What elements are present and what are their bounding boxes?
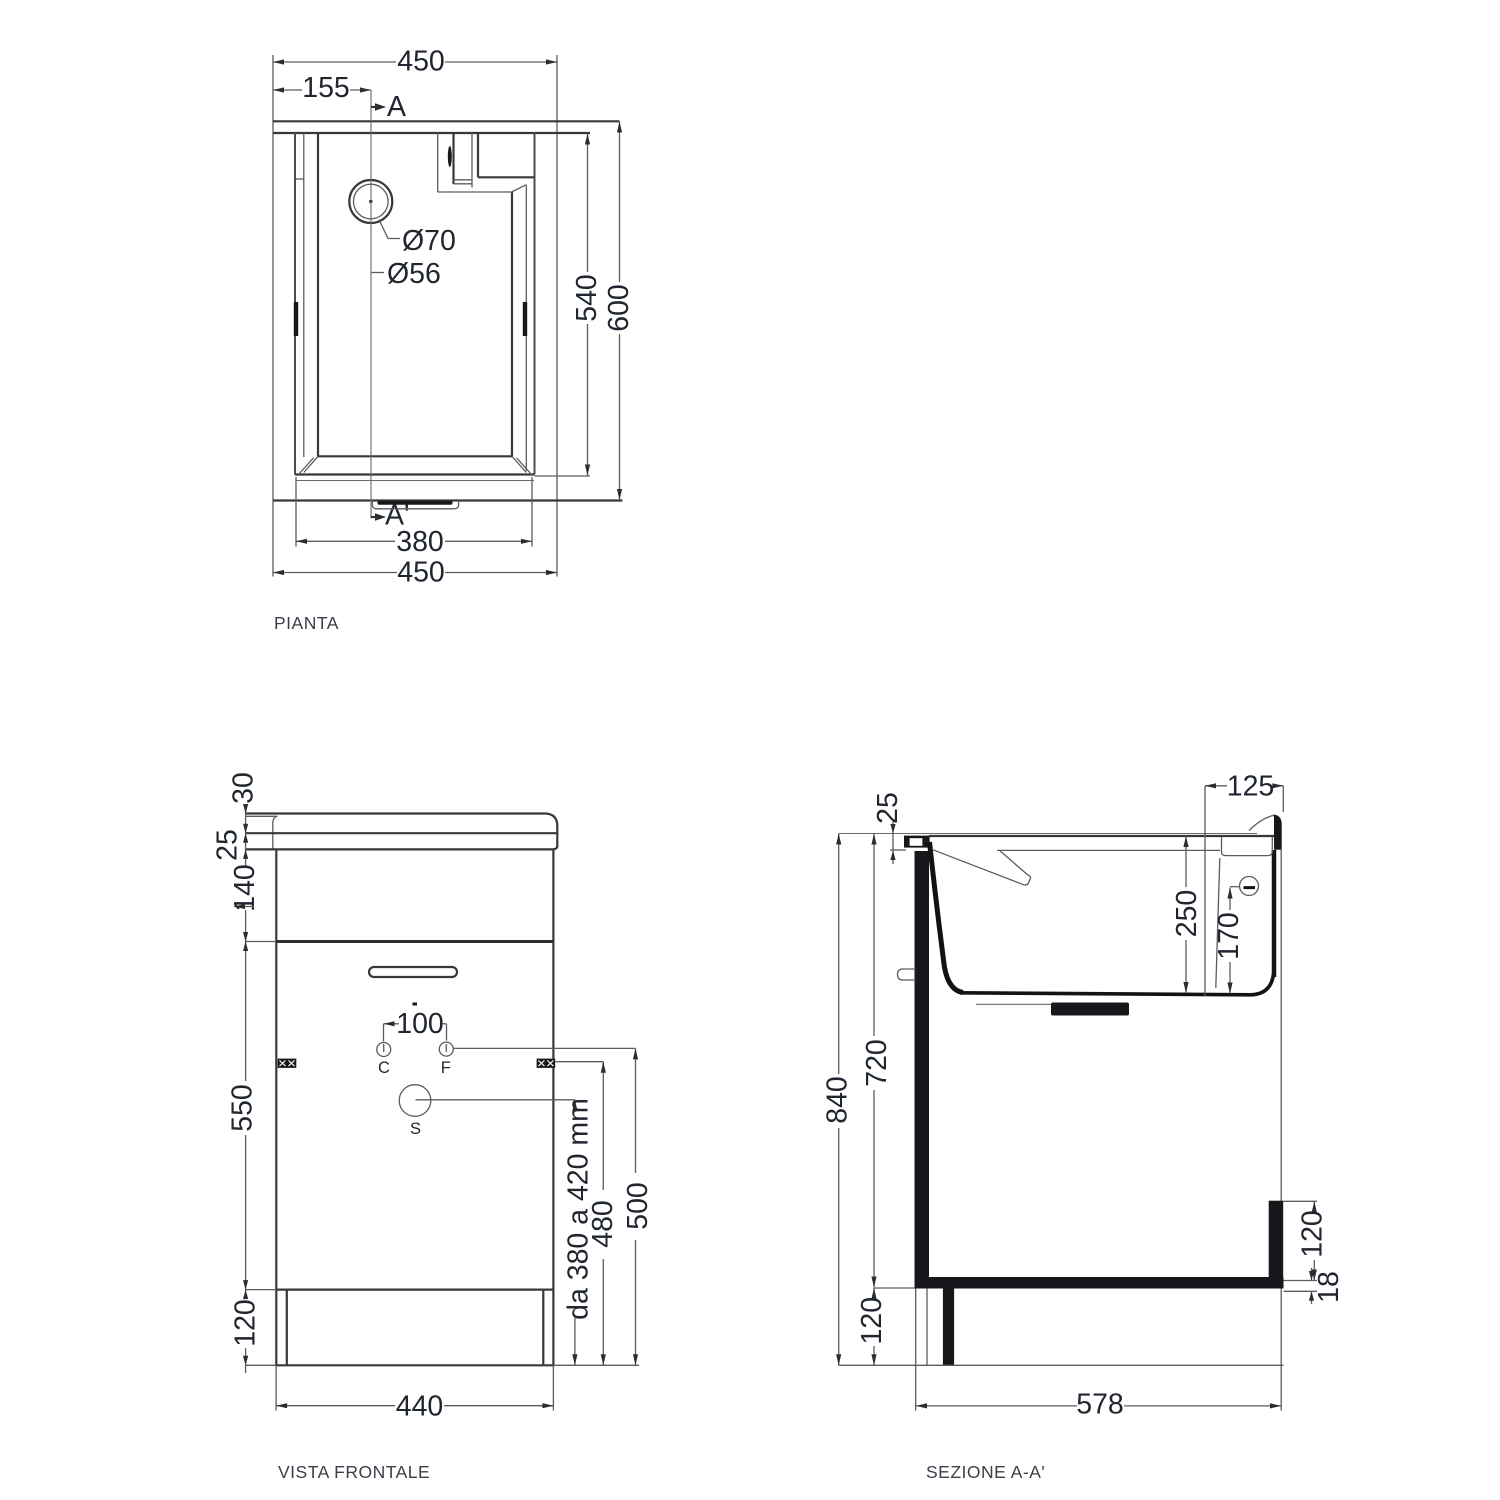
svg-text:120: 120: [856, 1297, 888, 1345]
svg-text:PIANTA: PIANTA: [274, 613, 339, 633]
svg-text:Ø70: Ø70: [402, 225, 456, 257]
svg-text:480: 480: [587, 1200, 619, 1248]
svg-text:440: 440: [396, 1391, 444, 1423]
svg-text:A: A: [387, 91, 406, 123]
svg-text:578: 578: [1076, 1389, 1124, 1421]
svg-text:C: C: [378, 1059, 390, 1077]
svg-text:380: 380: [396, 526, 444, 558]
svg-text:600: 600: [603, 284, 635, 332]
svg-text:120: 120: [1297, 1210, 1329, 1258]
svg-text:720: 720: [861, 1039, 893, 1087]
svg-text:25: 25: [872, 792, 904, 824]
svg-text:120: 120: [230, 1299, 262, 1347]
svg-text:Ø56: Ø56: [387, 258, 441, 290]
svg-text:155: 155: [302, 72, 350, 104]
svg-text:500: 500: [622, 1182, 654, 1230]
svg-text:30: 30: [228, 772, 260, 804]
svg-text:18: 18: [1313, 1271, 1345, 1303]
svg-text:450: 450: [397, 46, 445, 78]
svg-text:540: 540: [571, 274, 603, 322]
svg-text:550: 550: [227, 1084, 259, 1132]
svg-text:125: 125: [1227, 771, 1275, 803]
svg-text:VISTA FRONTALE: VISTA FRONTALE: [278, 1462, 430, 1482]
svg-text:840: 840: [822, 1076, 854, 1124]
svg-text:100: 100: [396, 1008, 444, 1040]
svg-text:450: 450: [397, 557, 445, 589]
svg-text:25: 25: [212, 829, 244, 861]
svg-text:S: S: [410, 1120, 421, 1138]
svg-text:250: 250: [1171, 890, 1203, 938]
svg-text:F: F: [441, 1059, 451, 1077]
svg-text:170: 170: [1213, 912, 1245, 960]
svg-text:SEZIONE A-A': SEZIONE A-A': [926, 1462, 1045, 1482]
